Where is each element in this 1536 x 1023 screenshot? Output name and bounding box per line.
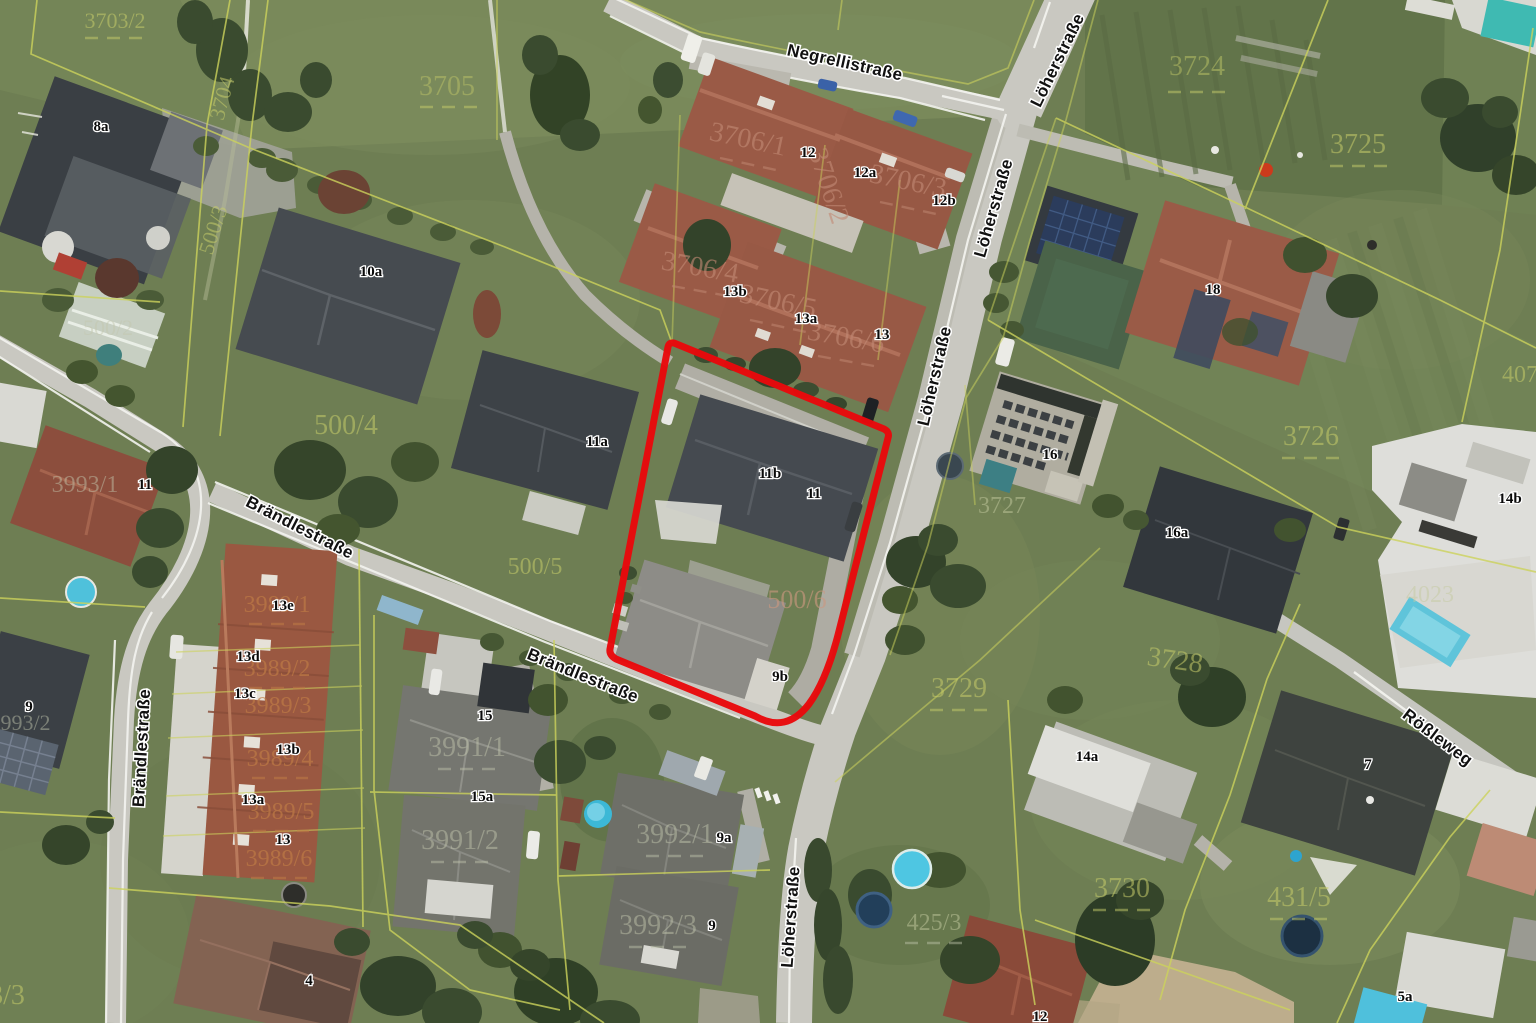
svg-text:5a: 5a — [1398, 989, 1414, 1005]
svg-text:11: 11 — [138, 477, 152, 493]
svg-text:12b: 12b — [932, 193, 955, 209]
svg-text:3726: 3726 — [1283, 421, 1339, 452]
svg-text:3993/1: 3993/1 — [52, 472, 119, 498]
svg-text:500/6: 500/6 — [767, 585, 826, 614]
svg-text:500/4: 500/4 — [314, 410, 378, 441]
svg-text:16a: 16a — [1166, 525, 1189, 541]
svg-text:3991/2: 3991/2 — [421, 825, 499, 856]
svg-text:13: 13 — [276, 832, 291, 848]
svg-text:431/5: 431/5 — [1267, 882, 1331, 913]
svg-text:3727: 3727 — [978, 493, 1026, 519]
svg-text:13e: 13e — [272, 598, 294, 614]
svg-text:12: 12 — [801, 145, 816, 161]
svg-text:13: 13 — [875, 327, 890, 343]
svg-text:500/2: 500/2 — [83, 315, 133, 340]
svg-text:425/3: 425/3 — [907, 910, 962, 936]
svg-text:13b: 13b — [723, 284, 746, 300]
svg-text:3725: 3725 — [1330, 129, 1386, 160]
svg-text:15: 15 — [478, 708, 493, 724]
svg-text:3992/1: 3992/1 — [636, 819, 714, 850]
svg-text:9: 9 — [25, 699, 33, 715]
svg-text:3705: 3705 — [419, 71, 475, 102]
svg-text:407: 407 — [1502, 362, 1536, 388]
svg-text:9: 9 — [708, 918, 716, 934]
svg-text:8a: 8a — [94, 119, 110, 135]
svg-text:15a: 15a — [471, 789, 494, 805]
svg-text:4023: 4023 — [1406, 582, 1454, 608]
svg-text:12: 12 — [1033, 1009, 1048, 1023]
svg-text:10a: 10a — [360, 264, 383, 280]
svg-text:9a: 9a — [717, 830, 733, 846]
svg-text:3703/2: 3703/2 — [84, 8, 145, 33]
svg-text:13c: 13c — [234, 686, 256, 702]
svg-text:9b: 9b — [772, 669, 788, 685]
svg-text:13a: 13a — [242, 792, 265, 808]
svg-text:18: 18 — [1206, 282, 1221, 298]
svg-text:11b: 11b — [759, 466, 782, 482]
svg-text:4: 4 — [305, 973, 313, 989]
svg-text:11a: 11a — [586, 434, 608, 450]
svg-text:14a: 14a — [1076, 749, 1099, 765]
svg-text:12a: 12a — [854, 165, 877, 181]
svg-text:3729: 3729 — [931, 673, 987, 704]
svg-text:11: 11 — [807, 486, 821, 502]
svg-text:16: 16 — [1043, 447, 1059, 463]
svg-text:14b: 14b — [1498, 491, 1521, 507]
svg-text:13d: 13d — [236, 649, 260, 665]
svg-text:3992/3: 3992/3 — [619, 910, 697, 941]
svg-text:500/5: 500/5 — [508, 554, 563, 580]
svg-text:3993/3: 3993/3 — [0, 980, 25, 1011]
svg-text:3730: 3730 — [1094, 873, 1150, 904]
svg-text:3989/6: 3989/6 — [246, 846, 313, 872]
svg-text:13a: 13a — [795, 311, 818, 327]
svg-text:7: 7 — [1364, 757, 1372, 773]
svg-text:13b: 13b — [276, 742, 299, 758]
svg-text:3991/1: 3991/1 — [428, 732, 506, 763]
svg-text:3724: 3724 — [1169, 51, 1225, 82]
